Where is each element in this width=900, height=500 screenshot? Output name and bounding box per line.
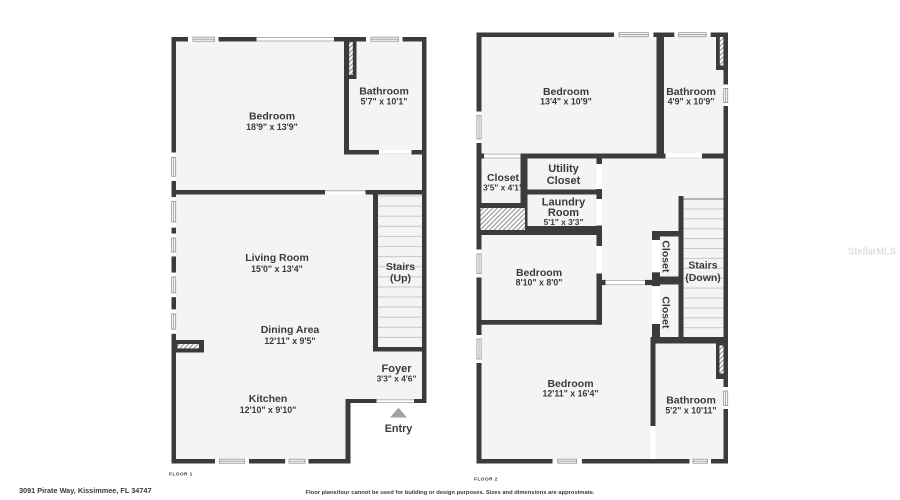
svg-text:(Up): (Up) [390, 272, 411, 284]
svg-text:Closet: Closet [659, 296, 671, 329]
svg-text:StellarMLS: StellarMLS [848, 246, 896, 258]
svg-text:5'7" x 10'1": 5'7" x 10'1" [361, 96, 408, 106]
svg-text:Kitchen: Kitchen [249, 393, 288, 405]
svg-text:12'11" x 16'4": 12'11" x 16'4" [542, 388, 598, 398]
svg-text:Bedroom: Bedroom [249, 111, 295, 123]
svg-text:12'10" x 9'10": 12'10" x 9'10" [240, 405, 297, 415]
svg-text:Utility: Utility [548, 163, 579, 175]
svg-text:15'0" x 13'4": 15'0" x 13'4" [251, 264, 303, 274]
svg-text:Closet: Closet [659, 240, 671, 273]
svg-text:Living Room: Living Room [245, 252, 309, 264]
svg-text:Stairs: Stairs [386, 261, 415, 273]
svg-text:13'4" x 10'9": 13'4" x 10'9" [540, 96, 592, 106]
svg-text:Dining Area: Dining Area [261, 324, 320, 336]
svg-text:Stairs: Stairs [688, 260, 717, 272]
svg-text:5'1" x 3'3": 5'1" x 3'3" [544, 217, 584, 227]
svg-text:12'11" x 9'5": 12'11" x 9'5" [264, 336, 315, 346]
svg-text:18'9" x 13'9": 18'9" x 13'9" [246, 122, 298, 132]
svg-text:(Down): (Down) [685, 272, 721, 284]
svg-text:5'2" x 10'11": 5'2" x 10'11" [665, 405, 716, 415]
svg-text:Entry: Entry [385, 423, 413, 435]
svg-text:8'10" x 8'0": 8'10" x 8'0" [516, 277, 563, 287]
svg-text:FLOOR 1: FLOOR 1 [169, 472, 193, 478]
svg-text:Floor plans/tour cannot be use: Floor plans/tour cannot be used for buil… [306, 490, 595, 496]
svg-text:3'5" x 4'1": 3'5" x 4'1" [483, 182, 523, 192]
svg-text:FLOOR 2: FLOOR 2 [474, 477, 498, 483]
svg-text:4'9" x 10'9": 4'9" x 10'9" [668, 96, 715, 106]
svg-text:3091 Pirate Way, Kissimmee, FL: 3091 Pirate Way, Kissimmee, FL 34747 [19, 486, 152, 495]
svg-text:Closet: Closet [547, 175, 581, 187]
svg-text:3'3" x 4'6": 3'3" x 4'6" [377, 374, 417, 384]
